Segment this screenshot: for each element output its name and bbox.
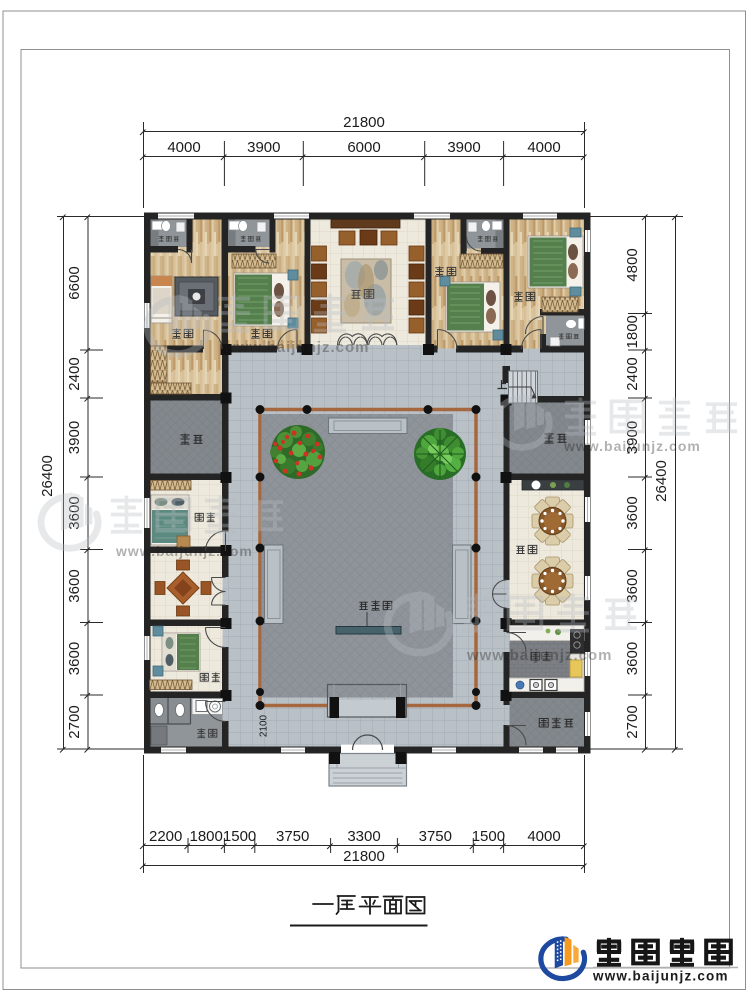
svg-text:6000: 6000 [347, 139, 380, 156]
svg-text:26400: 26400 [653, 460, 670, 502]
svg-text:4000: 4000 [527, 139, 560, 156]
svg-text:1500: 1500 [472, 828, 505, 845]
svg-text:3300: 3300 [347, 828, 380, 845]
svg-text:4000: 4000 [167, 139, 200, 156]
svg-text:2200: 2200 [149, 828, 182, 845]
svg-text:3600: 3600 [66, 642, 83, 675]
svg-text:3600: 3600 [624, 569, 641, 602]
svg-text:1800: 1800 [190, 828, 223, 845]
svg-text:1500: 1500 [223, 828, 256, 845]
svg-text:3600: 3600 [66, 569, 83, 602]
svg-text:2700: 2700 [624, 705, 641, 738]
svg-text:3600: 3600 [624, 642, 641, 675]
svg-text:2700: 2700 [66, 705, 83, 738]
svg-text:2400: 2400 [66, 357, 83, 390]
svg-text:3750: 3750 [419, 828, 452, 845]
svg-text:3900: 3900 [66, 421, 83, 454]
svg-text:2400: 2400 [624, 357, 641, 390]
svg-text:3600: 3600 [624, 496, 641, 529]
svg-text:26400: 26400 [39, 455, 56, 497]
svg-text:3900: 3900 [247, 139, 280, 156]
svg-text:www.baijunjz.com: www.baijunjz.com [466, 647, 612, 664]
svg-text:4000: 4000 [527, 828, 560, 845]
svg-text:3750: 3750 [276, 828, 309, 845]
svg-text:www.baijunjz.com: www.baijunjz.com [223, 339, 369, 356]
svg-text:www.baijunjz.com: www.baijunjz.com [563, 438, 701, 454]
svg-text:www.baijunjz.com: www.baijunjz.com [115, 543, 253, 559]
svg-text:2100: 2100 [259, 714, 270, 737]
svg-text:21800: 21800 [343, 848, 385, 865]
svg-text:1800: 1800 [624, 315, 641, 348]
svg-text:21800: 21800 [343, 114, 385, 131]
svg-text:3900: 3900 [447, 139, 480, 156]
svg-text:www.baijunjz.com: www.baijunjz.com [592, 969, 729, 984]
svg-text:6600: 6600 [66, 266, 83, 299]
svg-text:4800: 4800 [624, 248, 641, 281]
